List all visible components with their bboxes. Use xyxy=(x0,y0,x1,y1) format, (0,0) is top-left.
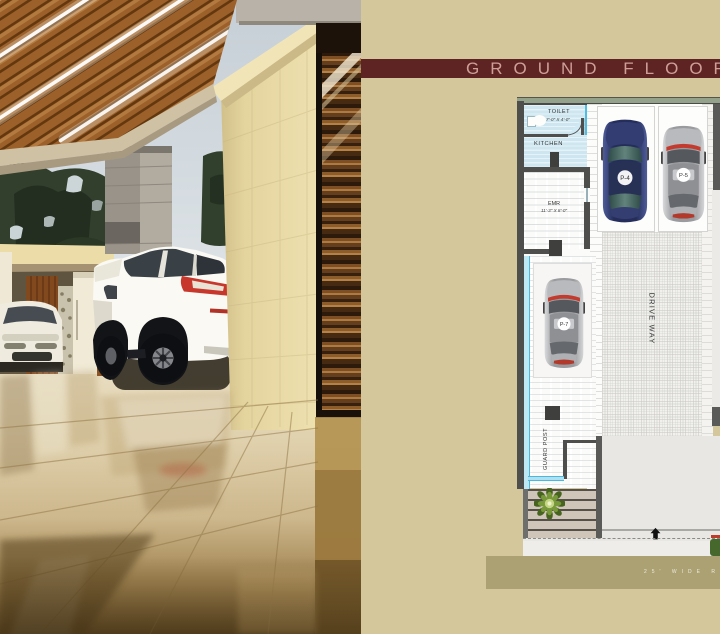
svg-text:P-4: P-4 xyxy=(620,175,630,182)
svg-text:P-5: P-5 xyxy=(679,173,688,179)
svg-text:P-7: P-7 xyxy=(560,322,568,328)
